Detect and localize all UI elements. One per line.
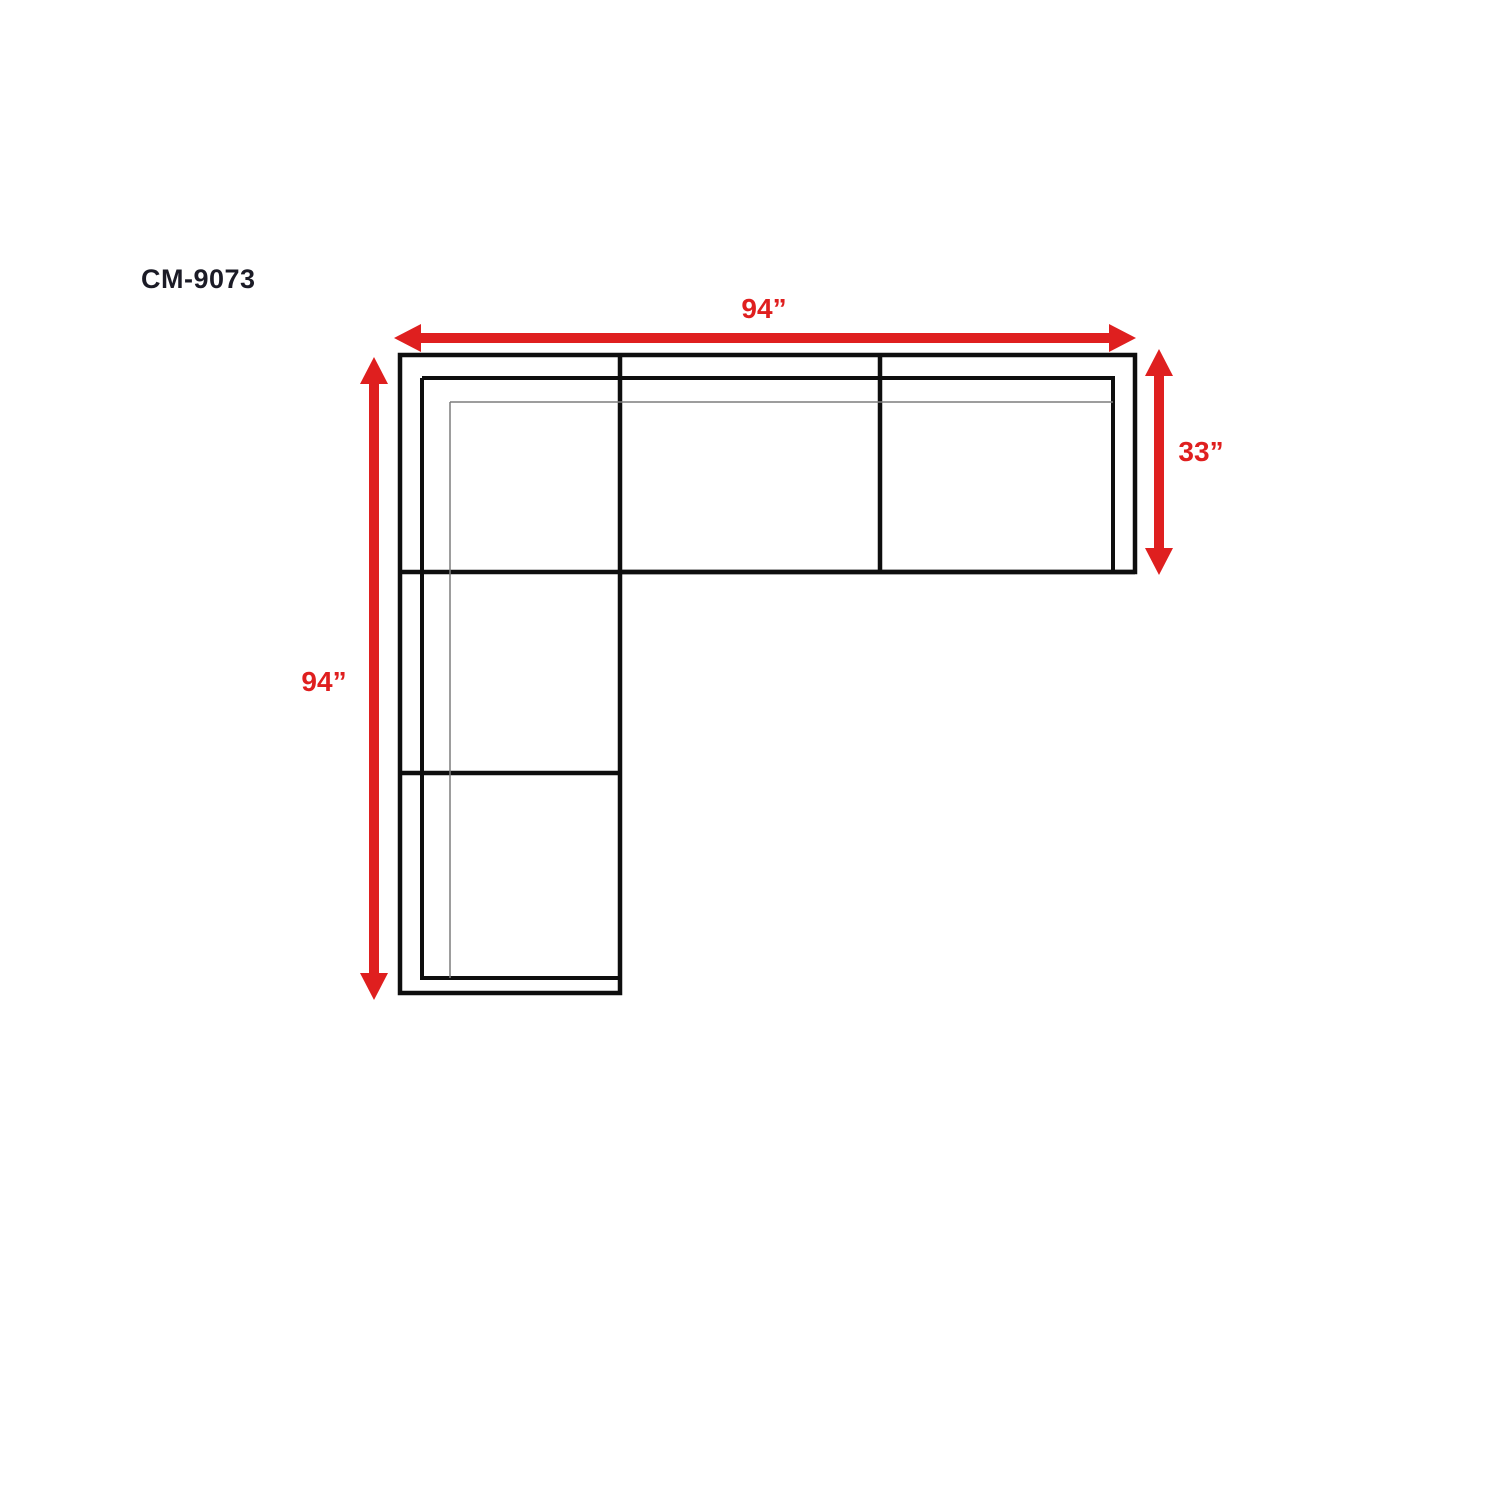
sofa-seat-detail-lines [450, 402, 1113, 978]
sofa-backrest-lines [422, 378, 1113, 978]
depth-dimension-arrow [1145, 349, 1173, 575]
dimension-diagram-page: CM-9073 94” 33” 94” [0, 0, 1500, 1500]
length-dimension-arrow [360, 357, 388, 1000]
dimension-arrows [360, 324, 1173, 1000]
width-arrow-head-right [1109, 324, 1136, 352]
backrest-line-left-bottom [422, 378, 620, 978]
backrest-line-top-right [422, 378, 1113, 572]
sofa-outer-outline [400, 355, 1135, 993]
length-arrow-head-top [360, 357, 388, 384]
depth-arrow-head-top [1145, 349, 1173, 376]
length-arrow-head-bottom [360, 973, 388, 1000]
depth-arrow-head-bottom [1145, 548, 1173, 575]
sofa-outline-path [400, 355, 1135, 993]
width-dimension-arrow [394, 324, 1136, 352]
sofa-dimension-drawing [0, 0, 1500, 1500]
width-arrow-head-left [394, 324, 421, 352]
